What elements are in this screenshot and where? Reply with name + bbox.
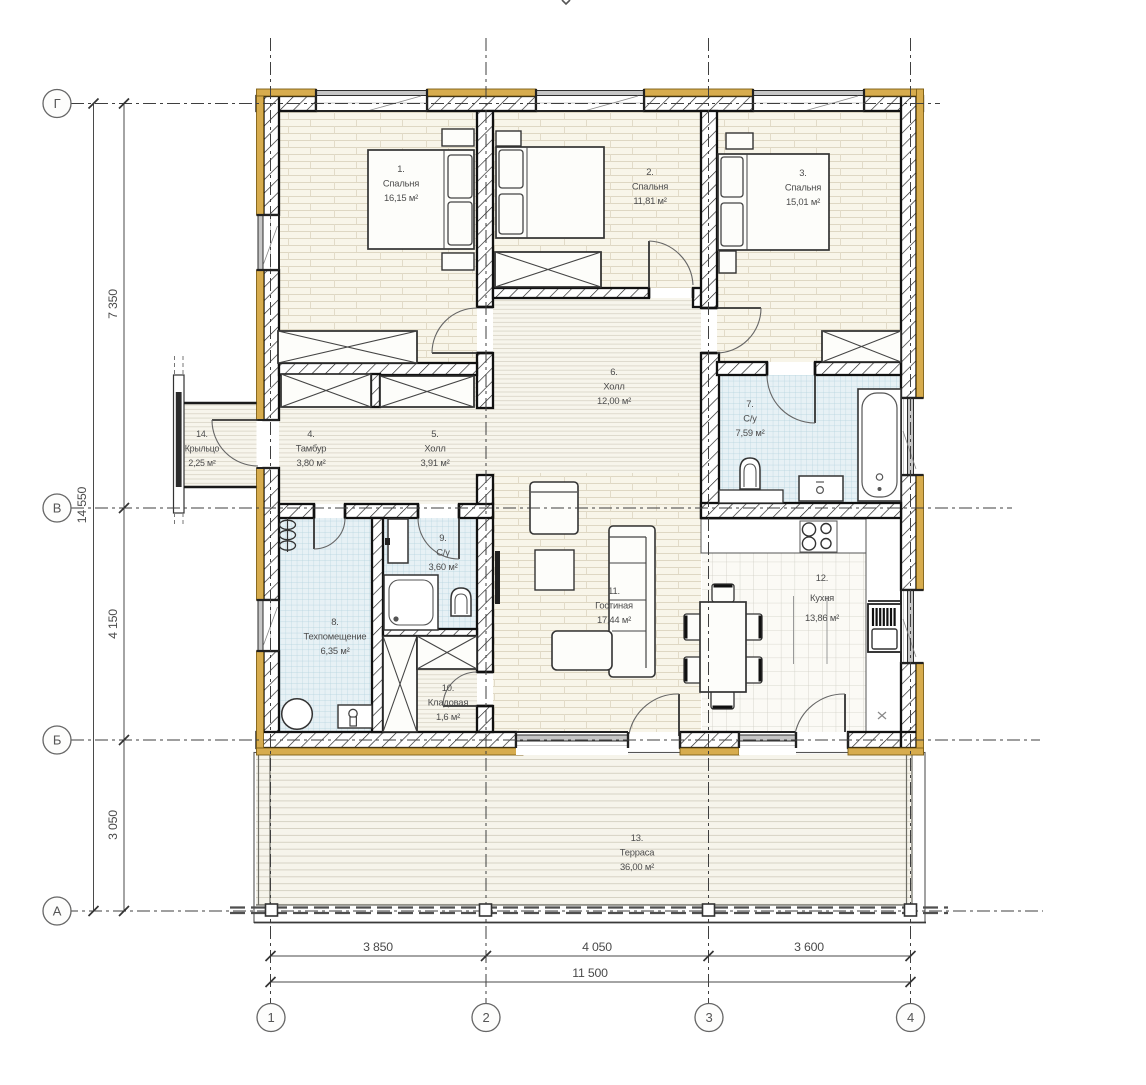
svg-text:8.: 8. bbox=[331, 616, 338, 627]
svg-text:Спальня: Спальня bbox=[632, 181, 668, 192]
svg-text:А: А bbox=[53, 904, 62, 919]
svg-text:3,91 м²: 3,91 м² bbox=[420, 457, 449, 468]
svg-text:9.: 9. bbox=[439, 532, 446, 543]
svg-text:10.: 10. bbox=[442, 682, 454, 693]
svg-text:Спальня: Спальня bbox=[383, 178, 419, 189]
svg-text:Г: Г bbox=[54, 96, 61, 111]
svg-text:В: В bbox=[53, 501, 61, 516]
svg-text:1,6 м²: 1,6 м² bbox=[436, 711, 460, 722]
svg-text:13,86 м²: 13,86 м² bbox=[805, 612, 839, 623]
svg-text:5.: 5. bbox=[431, 428, 438, 439]
svg-text:Терраса: Терраса bbox=[620, 847, 656, 858]
svg-text:1.: 1. bbox=[397, 163, 404, 174]
svg-text:7 350: 7 350 bbox=[106, 289, 120, 319]
svg-text:3,80 м²: 3,80 м² bbox=[296, 457, 325, 468]
svg-text:13.: 13. bbox=[631, 832, 643, 843]
svg-text:16,15 м²: 16,15 м² bbox=[384, 192, 418, 203]
svg-text:3 600: 3 600 bbox=[794, 940, 824, 954]
svg-text:Тамбур: Тамбур bbox=[296, 443, 327, 454]
svg-text:4.: 4. bbox=[307, 428, 314, 439]
svg-text:4: 4 bbox=[907, 1010, 914, 1025]
svg-text:С/у: С/у bbox=[743, 413, 757, 424]
svg-text:14 550: 14 550 bbox=[75, 486, 89, 523]
svg-text:Гостиная: Гостиная bbox=[595, 600, 633, 611]
svg-text:12.: 12. bbox=[816, 572, 828, 583]
svg-text:Холл: Холл bbox=[424, 443, 445, 454]
svg-text:Кладовая: Кладовая bbox=[428, 697, 469, 708]
svg-text:4 050: 4 050 bbox=[582, 940, 612, 954]
svg-text:11,81 м²: 11,81 м² bbox=[633, 195, 666, 206]
svg-text:11 500: 11 500 bbox=[572, 966, 608, 980]
svg-text:14.: 14. bbox=[196, 429, 208, 439]
svg-text:7,59 м²: 7,59 м² bbox=[735, 427, 764, 438]
svg-text:6.: 6. bbox=[610, 366, 617, 377]
svg-text:Кухня: Кухня bbox=[810, 592, 834, 603]
svg-text:3 850: 3 850 bbox=[363, 940, 393, 954]
svg-text:С/у: С/у bbox=[436, 547, 450, 558]
svg-text:3 050: 3 050 bbox=[106, 810, 120, 840]
svg-text:4 150: 4 150 bbox=[106, 609, 120, 639]
svg-text:36,00 м²: 36,00 м² bbox=[620, 861, 654, 872]
svg-text:3: 3 bbox=[705, 1010, 712, 1025]
svg-text:Крыльцо: Крыльцо bbox=[185, 444, 220, 454]
svg-text:12,00 м²: 12,00 м² bbox=[597, 395, 631, 406]
svg-text:Б: Б bbox=[53, 733, 61, 748]
svg-text:2,25 м²: 2,25 м² bbox=[188, 458, 215, 468]
svg-text:15,01 м²: 15,01 м² bbox=[786, 196, 820, 207]
svg-text:Холл: Холл bbox=[603, 381, 624, 392]
svg-text:17,44 м²: 17,44 м² bbox=[597, 614, 631, 625]
svg-text:3.: 3. bbox=[799, 167, 806, 178]
svg-text:2: 2 bbox=[482, 1010, 489, 1025]
svg-text:11.: 11. bbox=[608, 585, 620, 596]
svg-text:3,60 м²: 3,60 м² bbox=[428, 561, 457, 572]
svg-text:Спальня: Спальня bbox=[785, 182, 821, 193]
svg-text:2.: 2. bbox=[646, 166, 653, 177]
svg-text:1: 1 bbox=[267, 1010, 274, 1025]
svg-text:7.: 7. bbox=[746, 398, 753, 409]
svg-text:Техпомещение: Техпомещение bbox=[304, 631, 367, 642]
svg-text:6,35 м²: 6,35 м² bbox=[320, 645, 349, 656]
